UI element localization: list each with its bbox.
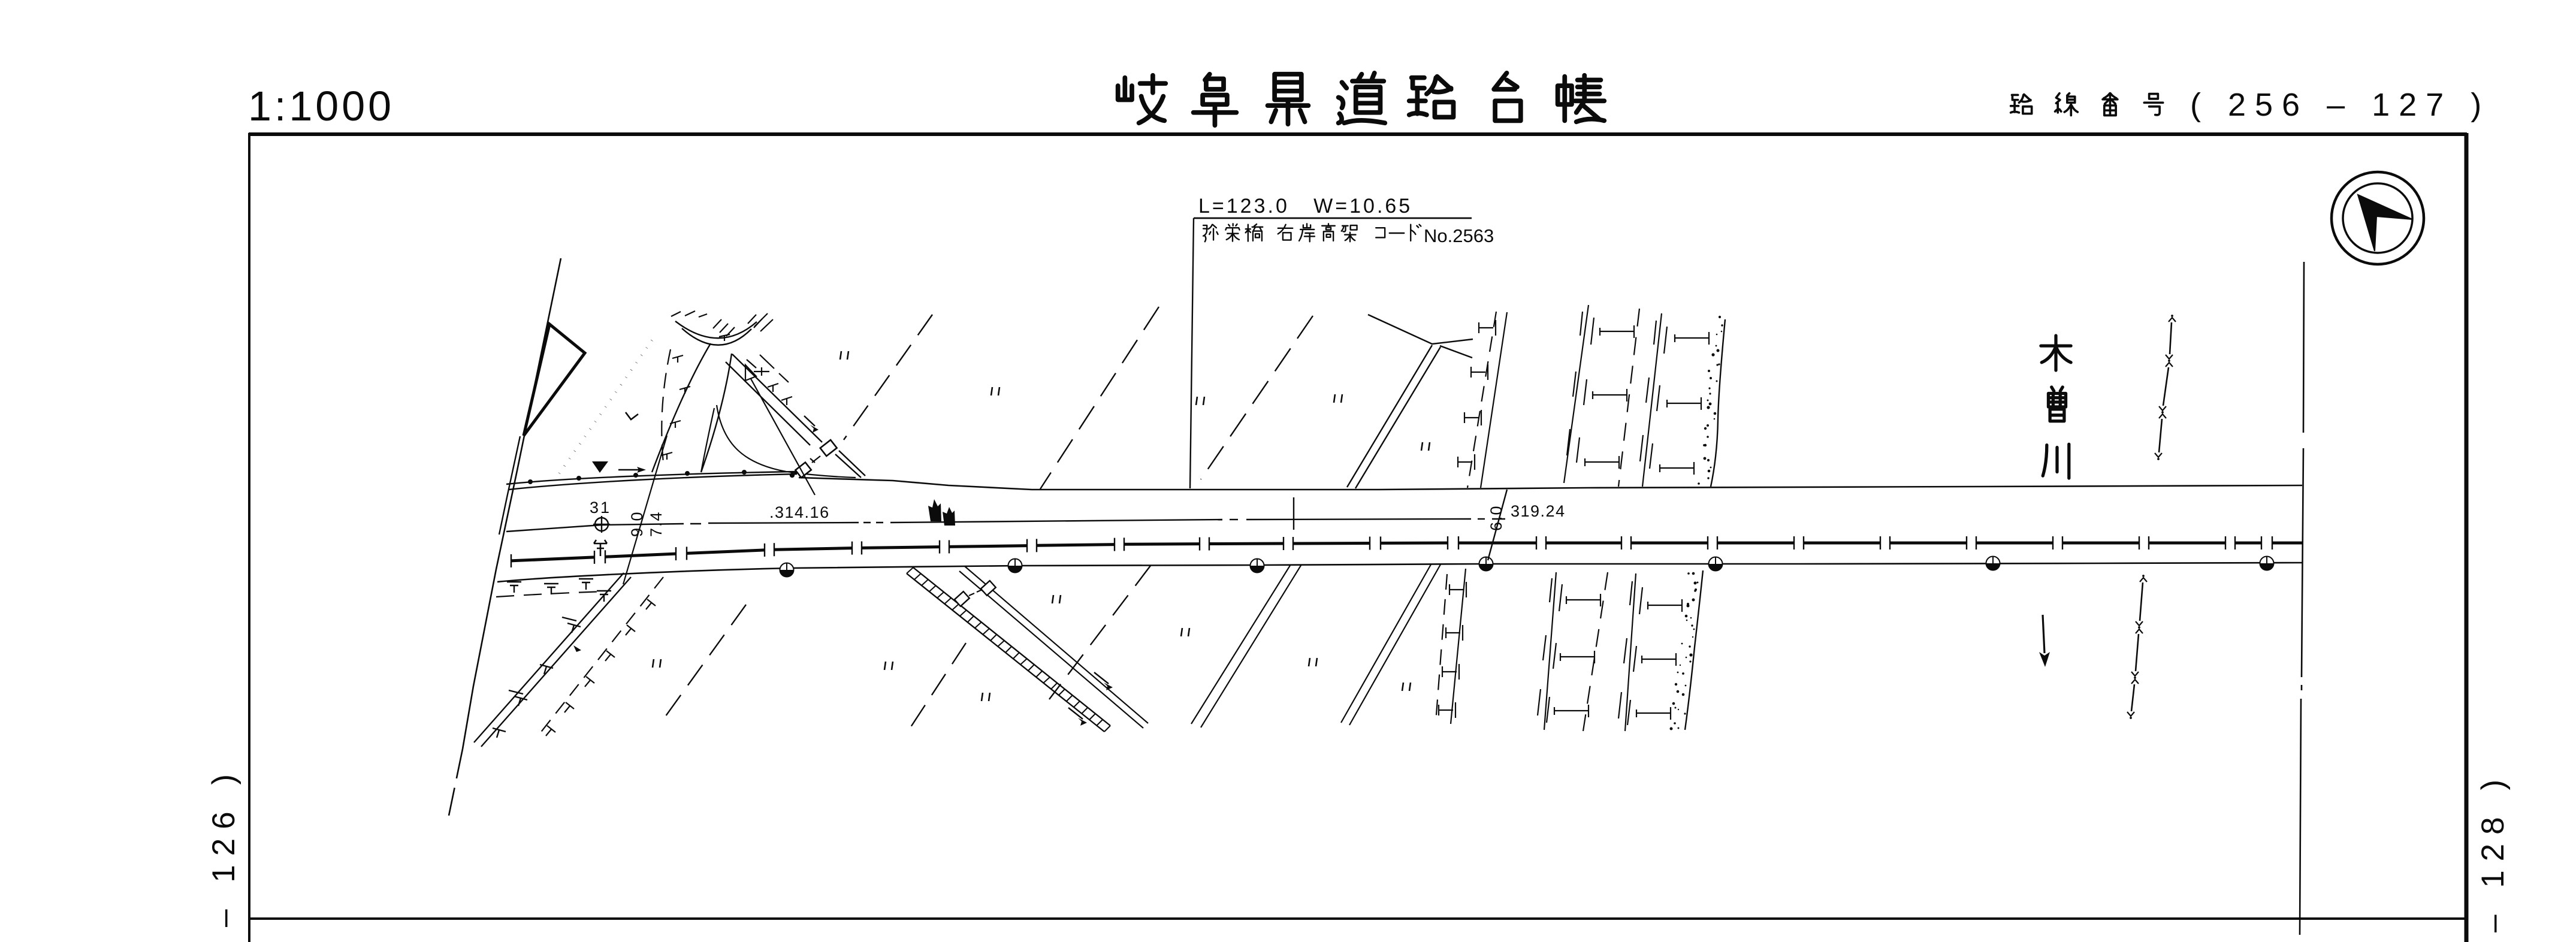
svg-text:.314.16: .314.16 (769, 503, 830, 521)
svg-text:– 128 ): – 128 ) (2475, 771, 2511, 932)
svg-text:319.24: 319.24 (1511, 502, 1566, 520)
svg-text:1:1000: 1:1000 (248, 83, 394, 129)
svg-text:– 126 ): – 126 ) (206, 765, 241, 927)
svg-text:7.4: 7.4 (647, 511, 665, 537)
svg-text:31: 31 (590, 499, 611, 517)
svg-text:6.0: 6.0 (1487, 505, 1505, 531)
svg-text:( 256 – 127 ): ( 256 – 127 ) (2190, 87, 2490, 123)
svg-text:No.2563: No.2563 (1424, 225, 1494, 246)
svg-text:L=123.0 W=10.65: L=123.0 W=10.65 (1198, 195, 1412, 218)
